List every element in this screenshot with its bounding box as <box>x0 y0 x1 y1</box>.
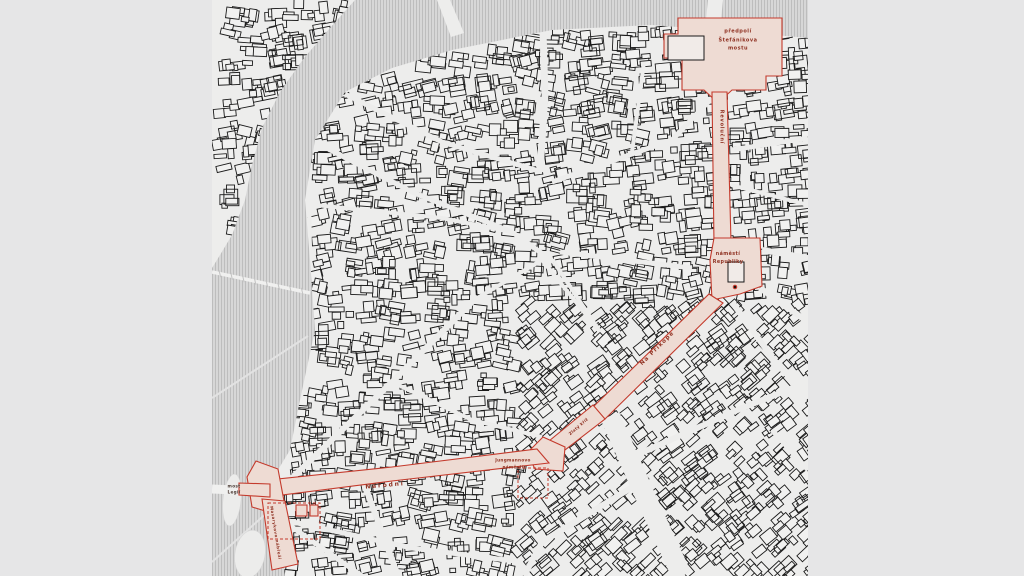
poi-dot <box>733 285 736 288</box>
stefanikuv-most <box>706 0 723 19</box>
map-figure: předpolí Štefánikova mostu Revoluční nám… <box>212 0 808 576</box>
city-map-canvas <box>212 0 808 576</box>
map-slide: předpolí Štefánikova mostu Revoluční nám… <box>0 0 1024 576</box>
